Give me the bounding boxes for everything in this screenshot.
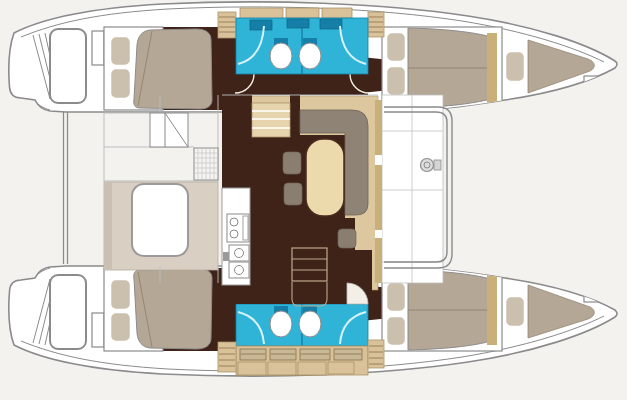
locker xyxy=(286,8,319,18)
windlass-winch xyxy=(421,159,442,172)
aft-bed-pillow xyxy=(110,68,131,99)
companionway-steps xyxy=(252,103,290,137)
stove xyxy=(227,214,249,242)
vanity-lockers xyxy=(240,349,362,360)
floor-plan-image xyxy=(0,0,627,400)
cockpit-table xyxy=(132,184,188,256)
cockpit-bench xyxy=(104,182,112,270)
galley-sink xyxy=(229,262,249,278)
closet-diagonal xyxy=(150,113,188,147)
aft-bed-mattress xyxy=(134,29,212,109)
galley-faucet xyxy=(223,252,229,261)
forward-bed-pillow xyxy=(386,32,406,62)
swim-platform xyxy=(50,29,86,103)
aft-crossbeam xyxy=(64,112,68,264)
hull-corridor xyxy=(236,74,368,95)
deck-hatch-grid xyxy=(194,148,218,180)
forward-bed-pillow xyxy=(386,66,406,96)
catamaran-floor-plan xyxy=(0,0,627,400)
dining-table xyxy=(306,139,344,216)
transom-locker xyxy=(92,31,104,65)
starboard-heads xyxy=(218,304,384,375)
galley-counter xyxy=(222,188,250,285)
forepeak-pillow xyxy=(505,51,525,82)
port-heads xyxy=(218,8,384,74)
forward-window-band xyxy=(375,95,443,283)
berth-divider xyxy=(487,33,497,103)
lockers xyxy=(238,362,354,375)
locker xyxy=(322,8,352,18)
aft-bed-pillow xyxy=(110,36,131,66)
galley-sink xyxy=(229,245,249,261)
